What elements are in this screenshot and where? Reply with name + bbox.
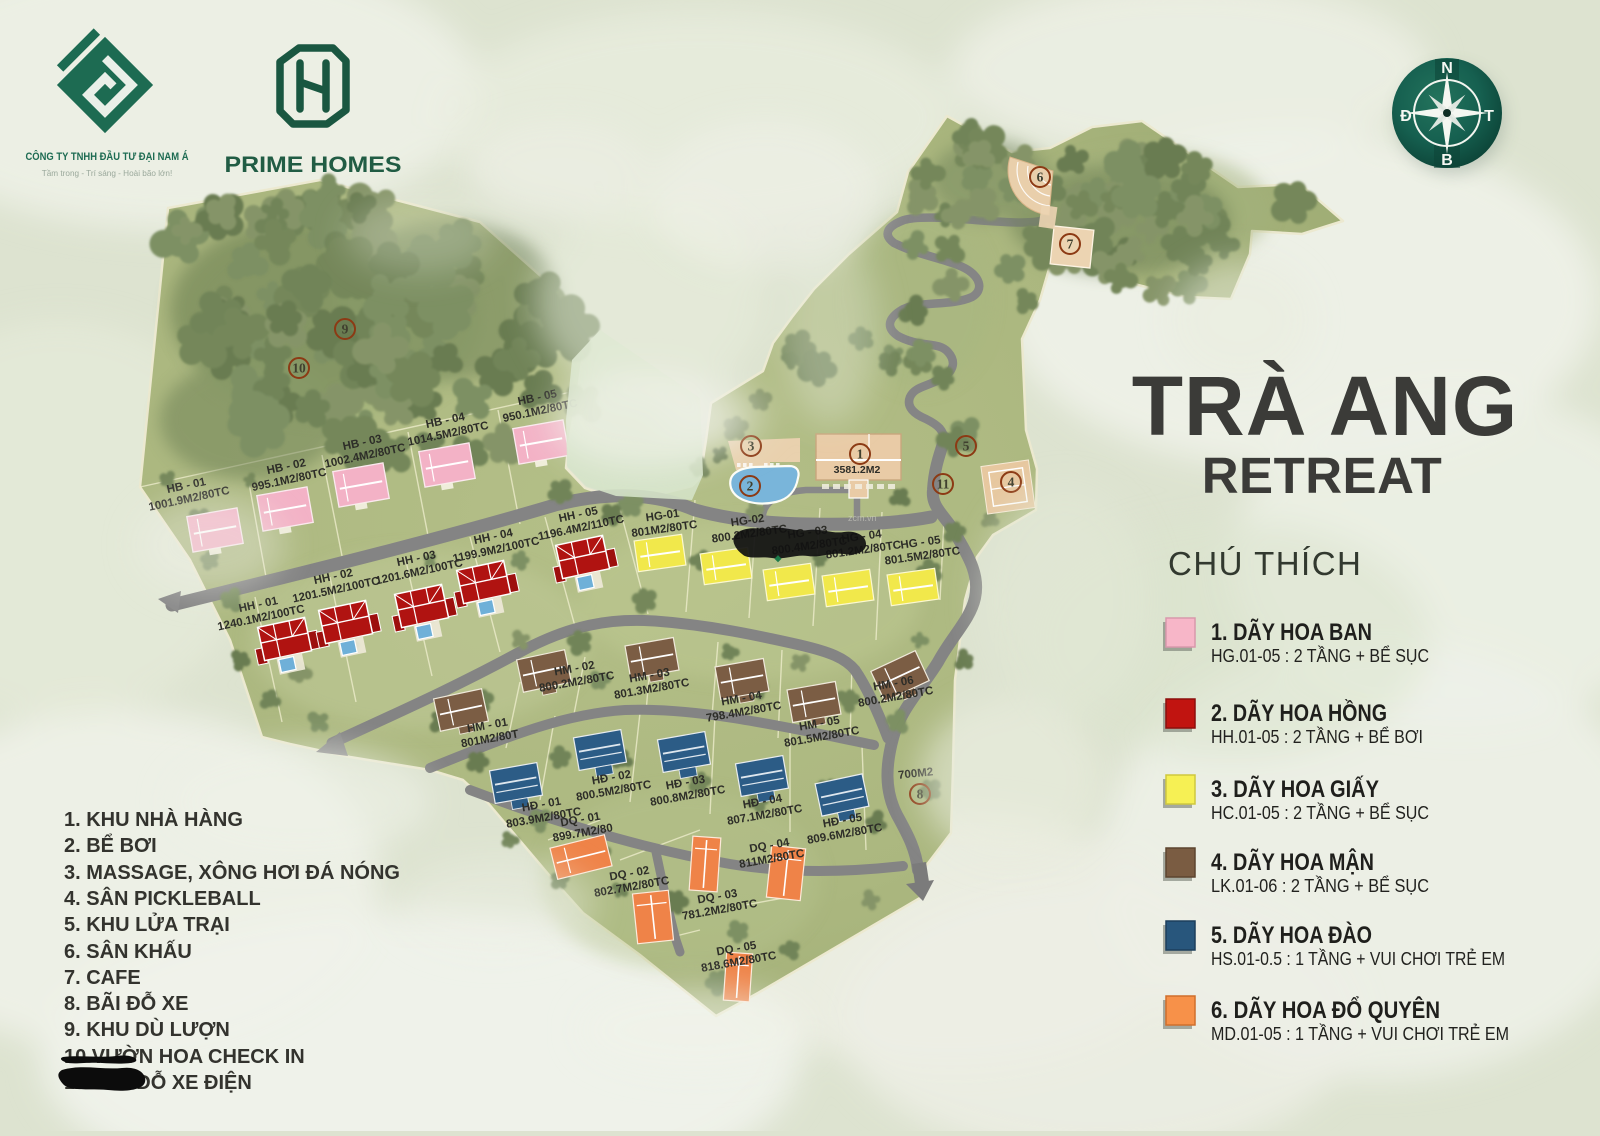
svg-text:MD.01-05 : 1 TẦNG + VUI CHƠI T: MD.01-05 : 1 TẦNG + VUI CHƠI TRẺ EM [1211,1023,1509,1044]
svg-text:9. KHU DÙ LƯỢN: 9. KHU DÙ LƯỢN [64,1017,230,1041]
svg-text:zcm.vn: zcm.vn [848,513,877,523]
svg-text:LK.01-06 : 2 TẦNG + BỂ SỤC: LK.01-06 : 2 TẦNG + BỂ SỤC [1211,875,1429,896]
svg-text:CÔNG TY TNHH ĐẦU TƯ ĐẠI NAM Á: CÔNG TY TNHH ĐẦU TƯ ĐẠI NAM Á [26,150,189,163]
svg-text:6. SÂN KHẤU: 6. SÂN KHẤU [64,939,192,963]
svg-text:2: 2 [747,479,754,494]
svg-text:CHÚ THÍCH: CHÚ THÍCH [1168,545,1362,582]
svg-text:3. DÃY HOA GIẤY: 3. DÃY HOA GIẤY [1211,775,1379,803]
svg-text:HH.01-05 : 2 TẦNG + BỂ BƠI: HH.01-05 : 2 TẦNG + BỂ BƠI [1211,726,1423,747]
svg-text:T: T [1484,108,1494,125]
svg-text:8. BÃI ĐỖ XE: 8. BÃI ĐỖ XE [64,991,188,1015]
svg-text:Tầm trong - Trí sáng - Hoài bã: Tầm trong - Trí sáng - Hoài bão lớn! [42,169,173,178]
svg-text:5: 5 [963,439,970,454]
svg-text:1. KHU NHÀ HÀNG: 1. KHU NHÀ HÀNG [64,808,243,831]
svg-text:5. DÃY HOA ĐÀO: 5. DÃY HOA ĐÀO [1211,921,1372,949]
svg-text:HC.01-05 : 2 TẦNG + BỂ SỤC: HC.01-05 : 2 TẦNG + BỂ SỤC [1211,802,1429,823]
svg-text:1: 1 [857,447,864,462]
svg-text:B: B [1441,152,1453,169]
svg-text:4: 4 [1008,475,1015,490]
svg-text:PRIME HOMES: PRIME HOMES [225,152,402,177]
svg-text:10: 10 [292,361,306,376]
svg-text:RETREAT: RETREAT [1202,447,1443,504]
svg-text:3581.2M2: 3581.2M2 [834,464,881,476]
svg-text:7. CAFE: 7. CAFE [64,967,141,989]
svg-text:6. DÃY HOA ĐỔ QUYÊN: 6. DÃY HOA ĐỔ QUYÊN [1211,996,1440,1024]
svg-text:11: 11 [937,477,950,492]
svg-text:4. SÂN PICKLEBALL: 4. SÂN PICKLEBALL [64,886,261,910]
svg-text:9: 9 [342,322,349,337]
svg-text:Đ: Đ [1400,108,1412,125]
svg-text:5. KHU LỬA TRẠI: 5. KHU LỬA TRẠI [64,912,230,936]
svg-text:2. BỂ BƠI: 2. BỂ BƠI [64,834,157,857]
svg-text:6: 6 [1037,170,1044,185]
svg-text:7: 7 [1067,237,1074,252]
svg-text:4. DÃY HOA MẬN: 4. DÃY HOA MẬN [1211,848,1374,876]
svg-text:2. DÃY HOA HỒNG: 2. DÃY HOA HỒNG [1211,699,1387,727]
svg-text:HS.01-0.5 : 1 TẦNG + VUI CHƠI: HS.01-0.5 : 1 TẦNG + VUI CHƠI TRẺ EM [1211,948,1505,969]
svg-text:3. MASSAGE, XÔNG HƠI ĐÁ NÓNG: 3. MASSAGE, XÔNG HƠI ĐÁ NÓNG [64,860,400,884]
svg-text:TRÀ ANG: TRÀ ANG [1132,359,1519,453]
svg-text:10 VƯỜN HOA CHECK IN: 10 VƯỜN HOA CHECK IN [64,1044,305,1068]
svg-text:1. DÃY HOA BAN: 1. DÃY HOA BAN [1211,618,1372,646]
svg-text:N: N [1441,60,1453,77]
svg-text:HG.01-05 : 2 TẦNG + BỂ SỤC: HG.01-05 : 2 TẦNG + BỂ SỤC [1211,645,1429,666]
